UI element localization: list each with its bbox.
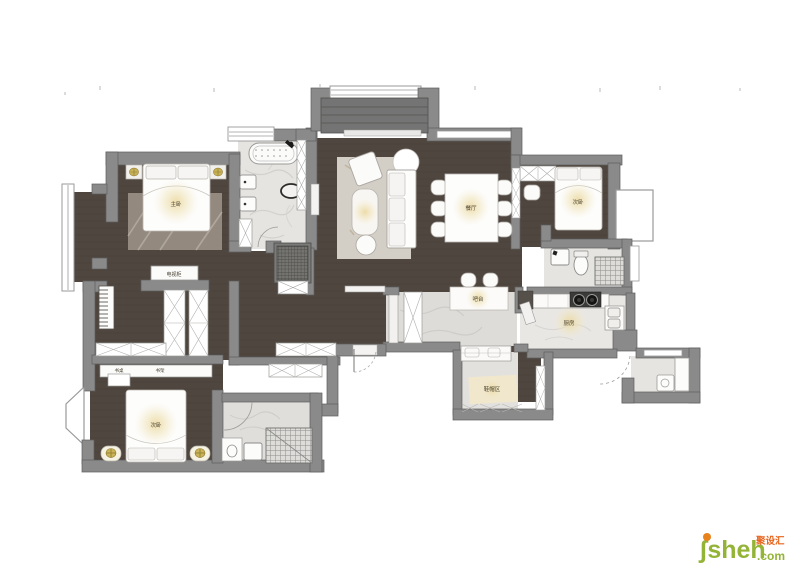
svg-text:次卧: 次卧 bbox=[150, 421, 162, 429]
svg-text:厨房: 厨房 bbox=[563, 319, 575, 327]
svg-text:鞋帽区: 鞋帽区 bbox=[484, 385, 501, 393]
svg-text:主卧: 主卧 bbox=[170, 200, 182, 208]
svg-text:聚设汇: 聚设汇 bbox=[755, 535, 785, 547]
svg-text:餐厅: 餐厅 bbox=[465, 204, 477, 212]
svg-text:书架: 书架 bbox=[156, 367, 165, 374]
svg-text:书桌: 书桌 bbox=[115, 367, 124, 374]
svg-text:吧台: 吧台 bbox=[472, 295, 484, 303]
svg-text:.com: .com bbox=[757, 549, 785, 563]
svg-text:次卧: 次卧 bbox=[572, 198, 584, 206]
svg-text:电视柜: 电视柜 bbox=[166, 271, 181, 278]
